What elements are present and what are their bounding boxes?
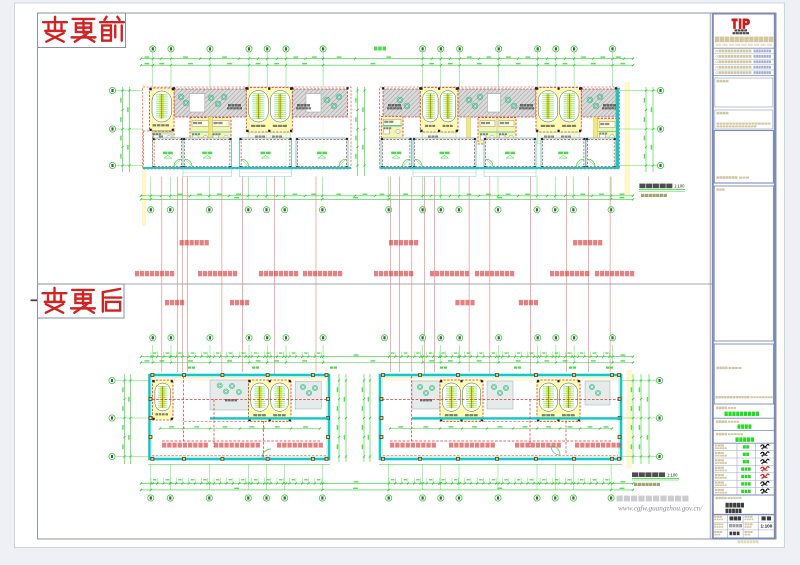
svg-text:www.cgfw.guangzhou.gov.cn/: www.cgfw.guangzhou.gov.cn/ [618, 505, 703, 513]
svg-text:1:100: 1:100 [761, 524, 773, 529]
svg-text:1:100: 1:100 [667, 472, 678, 477]
svg-text:1:100: 1:100 [674, 184, 685, 189]
